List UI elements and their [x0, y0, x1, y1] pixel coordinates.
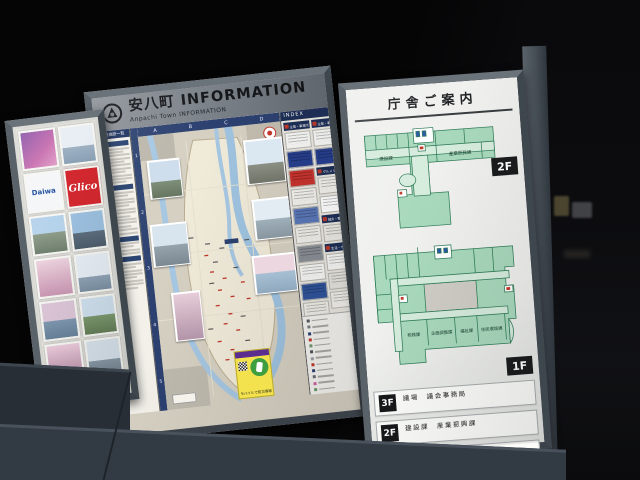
building-guide-panel: 庁舎ご案内	[338, 70, 552, 463]
map-photo-card	[146, 157, 183, 199]
wall-reflection	[564, 250, 590, 258]
floor-2-badge: 2F	[491, 156, 518, 176]
index-listing-card	[295, 225, 323, 245]
index-listing-card	[326, 251, 350, 271]
category-icon	[284, 125, 288, 129]
legend-label-line	[313, 331, 329, 334]
legend-symbol	[309, 344, 313, 348]
legend-symbol	[307, 319, 311, 323]
mobile-info-poster: モバイルで防災情報	[234, 348, 275, 400]
map-grid-letter: C	[224, 120, 228, 126]
index-listing-card	[330, 289, 350, 309]
map-grid-number: 5	[159, 380, 162, 385]
map-legend	[302, 311, 358, 395]
index-listing-card	[319, 193, 349, 213]
map-photo-image	[151, 223, 189, 266]
map-grid-number: 2	[141, 210, 144, 215]
floor-label: 2F	[381, 424, 399, 442]
hand-phone-icon	[249, 357, 269, 377]
index-listing-card	[290, 187, 318, 207]
wall-reflection	[554, 196, 569, 216]
legend-label-line	[317, 368, 333, 371]
index-listing-card	[286, 149, 314, 169]
poster-thumb	[28, 213, 69, 257]
directory-line: 建設課 産業振興課	[405, 418, 478, 434]
legend-symbol	[313, 381, 317, 385]
map-photo-card	[171, 290, 205, 342]
legend-label-line	[315, 349, 331, 352]
map-grid-number: 3	[147, 267, 150, 272]
index-category: 企業・事業所	[283, 120, 310, 131]
index-listing-card	[299, 262, 327, 282]
index-category-label: 生活・サービス	[331, 243, 350, 250]
poster-thumb	[18, 127, 59, 171]
qr-code	[238, 361, 248, 371]
map-photo-card	[251, 252, 298, 295]
index-listing-card	[284, 130, 312, 150]
floor-2-plan: 建設課 産業振興課 2F	[356, 115, 520, 236]
category-icon	[326, 246, 330, 250]
index-listing-card	[323, 222, 350, 242]
poster-thumb	[57, 122, 98, 166]
map-grid-letter: A	[153, 127, 157, 133]
category-icon	[323, 217, 327, 221]
map-photo-image	[148, 159, 182, 198]
map-photo-card	[251, 196, 294, 241]
poster-thumb	[34, 255, 75, 299]
directory-badge: 2F	[381, 424, 399, 442]
directory-rooms: 建設課 産業振興課	[398, 418, 478, 435]
map-grid-letter: D	[259, 116, 263, 122]
index-category-label: 企業・事業所	[317, 119, 337, 126]
directory-badge: 3F	[379, 394, 397, 412]
poster-thumb	[73, 250, 114, 294]
category-icon	[318, 169, 322, 173]
town-map-area: ABCD	[137, 112, 310, 410]
legend-label-line	[312, 324, 328, 327]
legend-symbol	[308, 332, 312, 336]
floor-label: 3F	[379, 394, 397, 412]
legend-label-line	[319, 380, 335, 383]
poster-thumb: Daiwa	[23, 170, 64, 214]
map-grid-letter: B	[188, 123, 192, 129]
wall-reflection	[572, 202, 592, 218]
directory-line: 議場 議会事務局	[402, 389, 467, 405]
map-photo-image	[244, 138, 284, 184]
poster-thumb	[68, 208, 109, 252]
legend-symbol	[310, 350, 314, 354]
poster-brand-label: Daiwa	[31, 186, 56, 197]
floor-1-plan: 税務課 企画調整課 福祉課 住民環境課 1F	[363, 224, 533, 382]
legend-symbol	[312, 369, 316, 373]
floor-2-rooms	[364, 123, 500, 230]
index-category-label: 鍼灸・整骨院	[328, 214, 348, 221]
poster-thumb	[78, 293, 119, 337]
legend-symbol	[314, 388, 318, 392]
poster-body	[235, 355, 272, 392]
legend-label-line	[318, 374, 334, 377]
index-listing-card	[301, 281, 329, 301]
index-listing-card	[328, 270, 350, 290]
index-category-label: 企業・事業所	[289, 122, 309, 129]
legend-symbol	[309, 338, 313, 342]
map-photo-image	[173, 292, 204, 341]
map-photo-image	[253, 253, 297, 293]
map-photo-card	[243, 136, 287, 185]
poster-brand-label: Glico	[68, 180, 98, 194]
legend-label-line	[314, 337, 330, 340]
directory-rooms: 議場 議会事務局	[395, 389, 467, 405]
legend-label-line	[312, 318, 328, 321]
category-icon	[312, 121, 316, 125]
legend-label-line	[317, 362, 333, 365]
legend-item	[314, 384, 354, 391]
map-photo-image	[253, 197, 293, 239]
poster-thumb: Glico	[62, 165, 103, 209]
index-category: 生活・サービス	[325, 241, 350, 252]
map-photo-card	[149, 221, 190, 268]
photo-of-information-signboard: DaiwaGlico 安八町 INFORMATION Anpachi Town …	[0, 0, 640, 480]
legend-symbol	[307, 326, 311, 330]
index-listing-card	[297, 244, 325, 264]
legend-label-line	[319, 387, 335, 390]
index-category: 企業・事業所	[311, 117, 343, 128]
legend-label-line	[316, 356, 332, 359]
index-listing-card	[292, 206, 320, 226]
poster-thumb	[39, 298, 80, 342]
index-category: 鍼灸・整骨院	[322, 212, 350, 223]
legend-label-line	[315, 343, 331, 346]
legend-symbol	[311, 363, 315, 367]
legend-symbol	[311, 357, 315, 361]
index-listing-card	[288, 168, 316, 188]
floor-1-rooms	[373, 240, 521, 365]
map-grid-number: 1	[135, 154, 138, 159]
legend-symbol	[313, 375, 317, 379]
map-grid-number: 4	[153, 323, 156, 328]
floor-1-badge: 1F	[506, 356, 533, 376]
